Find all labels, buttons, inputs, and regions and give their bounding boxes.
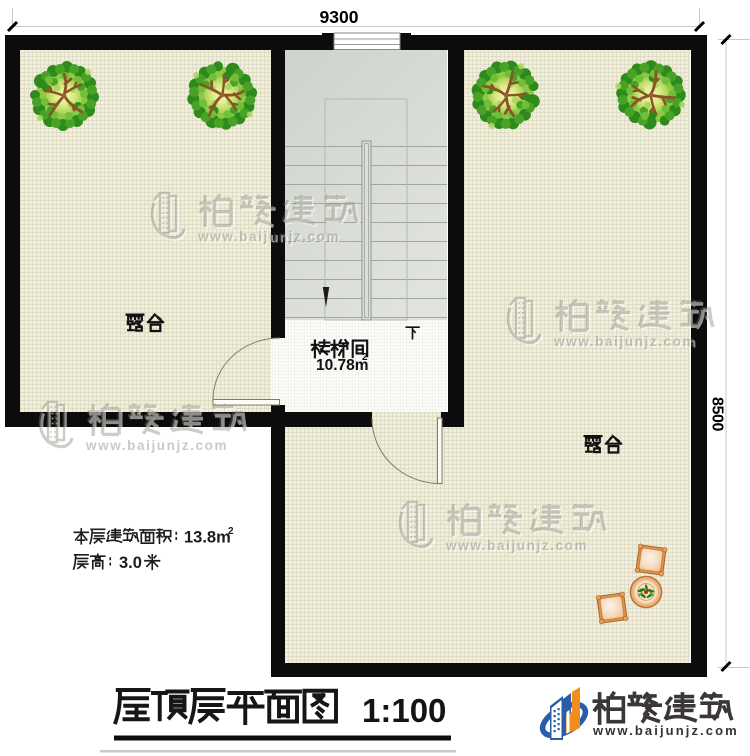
- svg-text:www.baijunjz.com: www.baijunjz.com: [445, 538, 588, 553]
- svg-text:13.8m: 13.8m: [184, 529, 231, 547]
- svg-text:8500: 8500: [709, 397, 726, 431]
- svg-text:10.78m: 10.78m: [316, 357, 369, 374]
- svg-text:9300: 9300: [320, 7, 359, 27]
- svg-text:1:100: 1:100: [362, 692, 446, 729]
- svg-text:www.baijunjz.com: www.baijunjz.com: [553, 334, 696, 349]
- svg-text:www.baijunjz.com: www.baijunjz.com: [592, 723, 739, 738]
- svg-text:www.baijunjz.com: www.baijunjz.com: [197, 229, 340, 244]
- svg-text:3.0: 3.0: [119, 554, 142, 572]
- svg-text:2: 2: [228, 526, 234, 537]
- svg-text:2: 2: [362, 352, 368, 363]
- svg-text:www.baijunjz.com: www.baijunjz.com: [85, 438, 228, 453]
